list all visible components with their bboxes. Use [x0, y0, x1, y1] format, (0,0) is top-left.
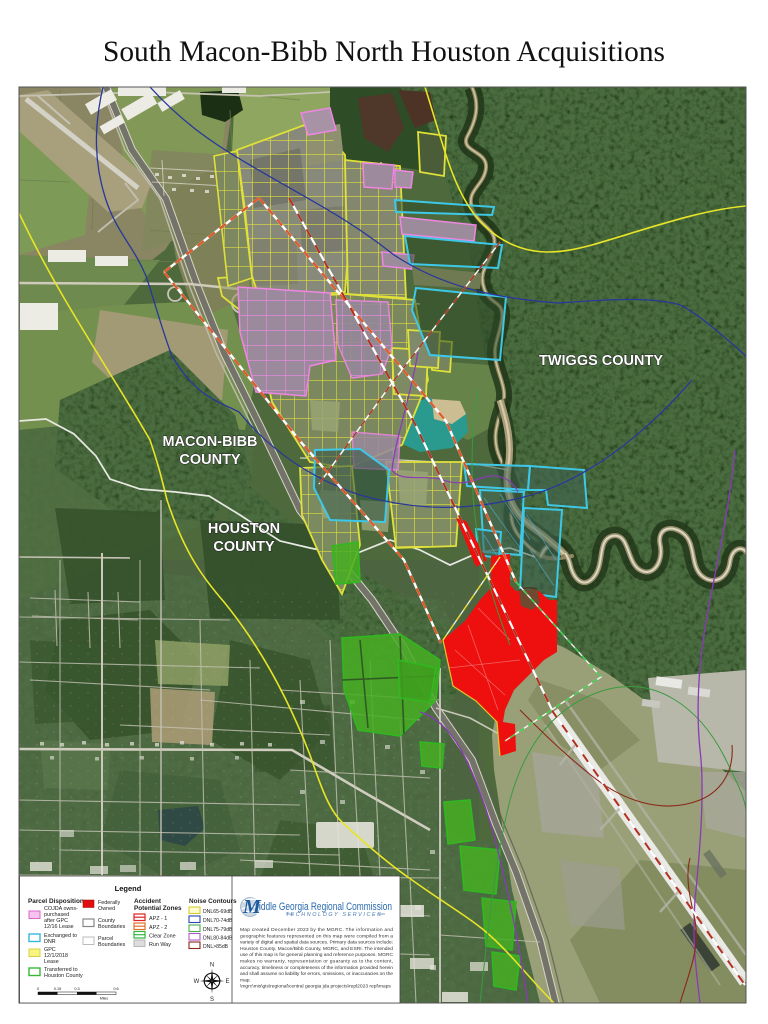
svg-text:0.6: 0.6	[113, 987, 118, 991]
svg-text:MACON-BIBB: MACON-BIBB	[162, 434, 257, 450]
svg-text:use of this map is for general: use of this map is for general planning …	[240, 952, 393, 958]
svg-text:variety of digital and spatial: variety of digital and spatial data sour…	[240, 940, 393, 946]
svg-text:Houston County: Houston County	[44, 973, 83, 979]
svg-text:E: E	[225, 979, 229, 985]
svg-text:map.: map.	[240, 978, 251, 983]
svg-text:N: N	[210, 963, 214, 969]
svg-text:Accident: Accident	[134, 898, 162, 905]
svg-text:Owned: Owned	[98, 906, 115, 912]
svg-text:DNL65-69dB: DNL65-69dB	[203, 909, 233, 915]
svg-text:DNL75-79dB: DNL75-79dB	[203, 927, 233, 933]
svg-text:DNL70-74dB: DNL70-74dB	[203, 918, 233, 924]
svg-text:Legend: Legend	[115, 884, 142, 893]
svg-text:Parcel Disposition: Parcel Disposition	[28, 898, 84, 905]
svg-text:\mgrc\mis\gis\regional\central: \mgrc\mis\gis\regional\central georgia j…	[240, 984, 391, 990]
svg-text:Lease: Lease	[44, 959, 59, 965]
svg-text:and shall assume no liability: and shall assume no liability for errors…	[240, 971, 393, 977]
svg-text:South Macon-Bibb North Houston: South Macon-Bibb North Houston Acquisiti…	[103, 36, 665, 68]
svg-text:HOUSTON: HOUSTON	[208, 521, 280, 537]
svg-text:makes no warranty, representat: makes no warranty, representation or gua…	[240, 959, 393, 965]
svg-text:TWIGGS COUNTY: TWIGGS COUNTY	[539, 353, 663, 369]
svg-text:W: W	[194, 979, 200, 985]
svg-text:COUNTY: COUNTY	[213, 539, 275, 555]
svg-text:Boundaries: Boundaries	[98, 924, 126, 930]
svg-text:Houston County, Macon/Bibb Cou: Houston County, Macon/Bibb County, MGRC,…	[240, 946, 393, 952]
svg-text:Map created December 2023 by t: Map created December 2023 by the MGRC. T…	[240, 927, 393, 933]
svg-text:Noise Contours: Noise Contours	[189, 898, 237, 905]
svg-text:0: 0	[37, 987, 39, 991]
svg-text:Clear Zone: Clear Zone	[149, 934, 176, 940]
svg-text:APZ - 1: APZ - 1	[149, 916, 167, 922]
svg-text:COUNTY: COUNTY	[179, 452, 241, 468]
svg-text:Boundaries: Boundaries	[98, 942, 126, 948]
svg-text:DNR: DNR	[44, 939, 56, 945]
svg-text:Miles: Miles	[100, 997, 108, 1001]
svg-text:TECHNOLOGY SERVICES: TECHNOLOGY SERVICES	[286, 912, 383, 918]
svg-text:DNL80-84dB: DNL80-84dB	[203, 936, 233, 942]
svg-text:Run Way: Run Way	[149, 942, 171, 948]
svg-text:DNL>85dB: DNL>85dB	[203, 944, 229, 950]
svg-text:0.15: 0.15	[54, 987, 61, 991]
svg-text:0.3: 0.3	[74, 987, 79, 991]
svg-text:S: S	[210, 997, 214, 1003]
svg-text:accuracy, timeliness or comple: accuracy, timeliness or completeness of …	[240, 965, 393, 971]
svg-text:Potential Zones: Potential Zones	[134, 905, 182, 912]
svg-text:12/16 Lease: 12/16 Lease	[44, 924, 74, 930]
svg-text:geographic features represente: geographic features represented on this …	[240, 933, 393, 939]
svg-text:APZ - 2: APZ - 2	[149, 925, 167, 931]
